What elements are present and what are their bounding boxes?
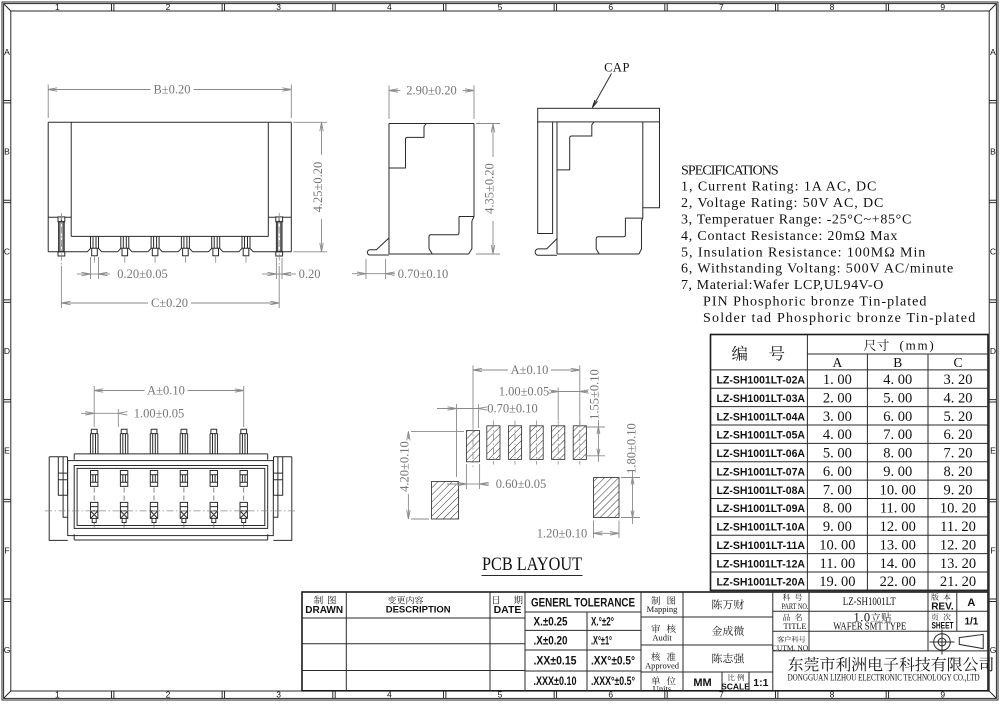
svg-text:4. 20: 4. 20 — [944, 390, 973, 406]
svg-text:6. 00: 6. 00 — [883, 409, 912, 425]
svg-text:12. 20: 12. 20 — [940, 537, 976, 553]
svg-text:1.00±0.05: 1.00±0.05 — [134, 407, 185, 421]
svg-text:B: B — [990, 147, 996, 157]
svg-text:(mm): (mm) — [899, 338, 935, 353]
svg-text:.XXX°±0.5°: .XXX°±0.5° — [591, 674, 635, 688]
svg-text:A: A — [833, 355, 843, 370]
svg-text:.X°±1°: .X°±1° — [591, 633, 612, 647]
svg-text:X.°±2°: X.°±2° — [591, 614, 614, 628]
svg-text:3, Temperatuer Range: -25°C~+8: 3, Temperatuer Range: -25°C~+85°C — [681, 213, 911, 228]
svg-text:1.00±0.05: 1.00±0.05 — [499, 385, 550, 399]
svg-text:1: 1 — [55, 690, 60, 700]
svg-text:G: G — [990, 645, 997, 655]
svg-text:E: E — [990, 446, 996, 456]
svg-text:.X±0.20: .X±0.20 — [534, 633, 568, 647]
svg-text:8. 00: 8. 00 — [883, 446, 912, 462]
svg-text:7: 7 — [719, 2, 724, 12]
svg-text:PIN Phosphoric bronze Tin-plat: PIN Phosphoric bronze Tin-plated — [703, 295, 926, 310]
svg-text:Solder tad Phosphoric bronze T: Solder tad Phosphoric bronze Tin-plated — [703, 311, 975, 326]
svg-text:1.55±0.10: 1.55±0.10 — [588, 369, 602, 420]
svg-text:5. 00: 5. 00 — [883, 390, 912, 406]
svg-text:LZ-SH1001LT-11A: LZ-SH1001LT-11A — [717, 540, 806, 552]
svg-text:PART NO.: PART NO. — [782, 602, 809, 611]
svg-text:SHEET: SHEET — [932, 621, 954, 631]
svg-text:LZ-SH1001LT-10A: LZ-SH1001LT-10A — [717, 522, 806, 534]
svg-text:9: 9 — [940, 2, 945, 12]
svg-text:A±0.10: A±0.10 — [511, 363, 549, 377]
svg-text:DONGGUAN LIZHOU ELECTRONIC TEC: DONGGUAN LIZHOU ELECTRONIC TECHNOLOGY CO… — [788, 674, 980, 684]
svg-text:2.90±0.20: 2.90±0.20 — [406, 84, 457, 98]
svg-text:Audit: Audit — [652, 632, 672, 642]
svg-text:0.20: 0.20 — [299, 267, 321, 281]
svg-text:GENERL TOLERANCE: GENERL TOLERANCE — [531, 596, 635, 610]
svg-text:C: C — [953, 355, 962, 370]
svg-text:Units: Units — [653, 684, 671, 694]
svg-text:.XXX±0.10: .XXX±0.10 — [534, 674, 577, 688]
svg-text:1.20±0.10: 1.20±0.10 — [537, 527, 588, 541]
svg-text:1, Current Rating: 1A AC, DC: 1, Current Rating: 1A AC, DC — [681, 180, 876, 195]
svg-text:3. 00: 3. 00 — [823, 409, 852, 425]
svg-text:REV.: REV. — [931, 602, 954, 613]
svg-text:10. 20: 10. 20 — [940, 501, 976, 517]
svg-text:LZ-SH1001LT-05A: LZ-SH1001LT-05A — [717, 430, 806, 442]
svg-text:.XX±0.15: .XX±0.15 — [534, 654, 577, 668]
svg-text:14. 00: 14. 00 — [880, 556, 916, 572]
svg-text:8. 00: 8. 00 — [823, 501, 852, 517]
svg-text:.XX°±0.5°: .XX°±0.5° — [591, 654, 635, 668]
svg-text:PCB LAYOUT: PCB LAYOUT — [482, 554, 582, 575]
svg-text:11. 00: 11. 00 — [880, 501, 916, 517]
svg-text:C: C — [4, 246, 10, 256]
svg-text:4.20±0.10: 4.20±0.10 — [398, 441, 412, 492]
svg-text:2, Voltage Rating: 50V AC, DC: 2, Voltage Rating: 50V AC, DC — [681, 196, 883, 211]
svg-text:CUTM. NO.: CUTM. NO. — [772, 644, 810, 653]
svg-text:9. 20: 9. 20 — [944, 482, 973, 498]
svg-text:4, Contact Resistance: 20mΩ Ma: 4, Contact Resistance: 20mΩ Max — [681, 229, 897, 244]
svg-text:LZ-SH1001LT-02A: LZ-SH1001LT-02A — [717, 375, 806, 387]
svg-text:7. 00: 7. 00 — [823, 482, 852, 498]
svg-text:LZ-SH1001LT-08A: LZ-SH1001LT-08A — [717, 485, 806, 497]
svg-text:G: G — [4, 645, 11, 655]
svg-text:LZ-SH1001LT-12A: LZ-SH1001LT-12A — [717, 558, 806, 570]
svg-text:LZ-SH1001LT-04A: LZ-SH1001LT-04A — [717, 411, 806, 423]
svg-text:19. 00: 19. 00 — [819, 574, 855, 590]
svg-text:0.70±0.10: 0.70±0.10 — [487, 402, 538, 416]
svg-text:6. 00: 6. 00 — [823, 464, 852, 480]
svg-text:0.60±0.05: 0.60±0.05 — [496, 477, 547, 491]
svg-text:6, Withstanding Voltang: 500V: 6, Withstanding Voltang: 500V AC/minute — [681, 262, 953, 277]
svg-text:D: D — [990, 346, 996, 356]
svg-text:C±0.20: C±0.20 — [151, 296, 188, 310]
svg-text:4.35±0.20: 4.35±0.20 — [482, 163, 496, 214]
svg-text:12. 00: 12. 00 — [880, 519, 916, 535]
svg-text:4.25±0.20: 4.25±0.20 — [311, 162, 325, 213]
svg-text:MM: MM — [693, 677, 711, 689]
svg-text:5, Insulation Resistance: 100M: 5, Insulation Resistance: 100MΩ Min — [681, 245, 925, 260]
svg-text:LZ-SH1001LT: LZ-SH1001LT — [843, 596, 896, 608]
svg-text:4. 00: 4. 00 — [883, 372, 912, 388]
svg-text:B±0.20: B±0.20 — [153, 83, 190, 97]
svg-text:B: B — [893, 355, 902, 370]
svg-text:2. 00: 2. 00 — [823, 390, 852, 406]
svg-text:4. 00: 4. 00 — [823, 427, 852, 443]
svg-text:A: A — [967, 597, 975, 609]
svg-text:1. 00: 1. 00 — [823, 372, 852, 388]
svg-text:21. 20: 21. 20 — [940, 574, 976, 590]
svg-text:6: 6 — [608, 2, 613, 12]
svg-text:A±0.10: A±0.10 — [147, 384, 185, 398]
svg-text:3: 3 — [276, 2, 281, 12]
svg-text:3. 20: 3. 20 — [944, 372, 973, 388]
svg-text:0.20±0.05: 0.20±0.05 — [117, 267, 168, 281]
svg-text:10. 00: 10. 00 — [880, 482, 916, 498]
svg-text:CAP: CAP — [604, 61, 630, 75]
svg-text:Approved: Approved — [645, 660, 680, 670]
svg-text:1/1: 1/1 — [964, 617, 978, 628]
svg-text:4: 4 — [387, 2, 392, 12]
svg-text:LZ-SH1001LT-07A: LZ-SH1001LT-07A — [717, 466, 806, 478]
svg-text:2: 2 — [166, 690, 171, 700]
svg-text:E: E — [4, 446, 10, 456]
svg-text:B: B — [4, 147, 10, 157]
svg-text:Mapping: Mapping — [647, 604, 678, 614]
svg-text:22. 00: 22. 00 — [880, 574, 916, 590]
svg-text:8: 8 — [830, 2, 835, 12]
svg-text:DATE: DATE — [494, 604, 522, 616]
svg-text:WAFER SMT TYPE: WAFER SMT TYPE — [833, 621, 906, 633]
svg-text:7, Material:Wafer LCP,UL94V-O: 7, Material:Wafer LCP,UL94V-O — [681, 278, 883, 293]
svg-text:X.±0.25: X.±0.25 — [534, 614, 568, 628]
svg-text:11. 20: 11. 20 — [940, 519, 976, 535]
svg-text:TITLE: TITLE — [784, 622, 807, 631]
svg-text:DRAWN: DRAWN — [305, 605, 343, 616]
svg-text:5: 5 — [498, 2, 503, 12]
svg-text:0.70±0.10: 0.70±0.10 — [398, 267, 449, 281]
svg-text:SCALE: SCALE — [721, 681, 750, 691]
svg-text:7. 20: 7. 20 — [944, 446, 973, 462]
svg-text:13. 20: 13. 20 — [940, 556, 976, 572]
svg-text:1: 1 — [55, 2, 60, 12]
svg-text:5. 00: 5. 00 — [823, 446, 852, 462]
svg-text:LZ-SH1001LT-09A: LZ-SH1001LT-09A — [717, 503, 806, 515]
svg-text:F: F — [4, 545, 9, 555]
svg-text:11. 00: 11. 00 — [820, 556, 856, 572]
svg-text:LZ-SH1001LT-03A: LZ-SH1001LT-03A — [717, 393, 806, 405]
svg-text:A: A — [990, 47, 996, 57]
svg-text:LZ-SH1001LT-20A: LZ-SH1001LT-20A — [717, 577, 806, 589]
svg-text:10. 00: 10. 00 — [819, 537, 855, 553]
svg-text:7. 00: 7. 00 — [883, 427, 912, 443]
svg-text:DESCRIPTION: DESCRIPTION — [386, 605, 451, 616]
svg-text:9. 00: 9. 00 — [883, 464, 912, 480]
svg-text:LZ-SH1001LT-06A: LZ-SH1001LT-06A — [717, 448, 806, 460]
svg-text:SPECIFICATIONS: SPECIFICATIONS — [681, 163, 779, 178]
svg-text:13. 00: 13. 00 — [880, 537, 916, 553]
svg-text:3: 3 — [276, 690, 281, 700]
svg-text:5. 20: 5. 20 — [944, 409, 973, 425]
svg-text:1:1: 1:1 — [753, 677, 768, 689]
svg-text:2: 2 — [166, 2, 171, 12]
svg-text:1.80±0.10: 1.80±0.10 — [624, 423, 638, 474]
svg-text:D: D — [4, 346, 10, 356]
svg-text:9. 00: 9. 00 — [823, 519, 852, 535]
svg-text:F: F — [990, 545, 995, 555]
svg-text:A: A — [4, 47, 10, 57]
svg-text:C: C — [990, 246, 996, 256]
svg-text:8. 20: 8. 20 — [944, 464, 973, 480]
svg-text:6. 20: 6. 20 — [944, 427, 973, 443]
